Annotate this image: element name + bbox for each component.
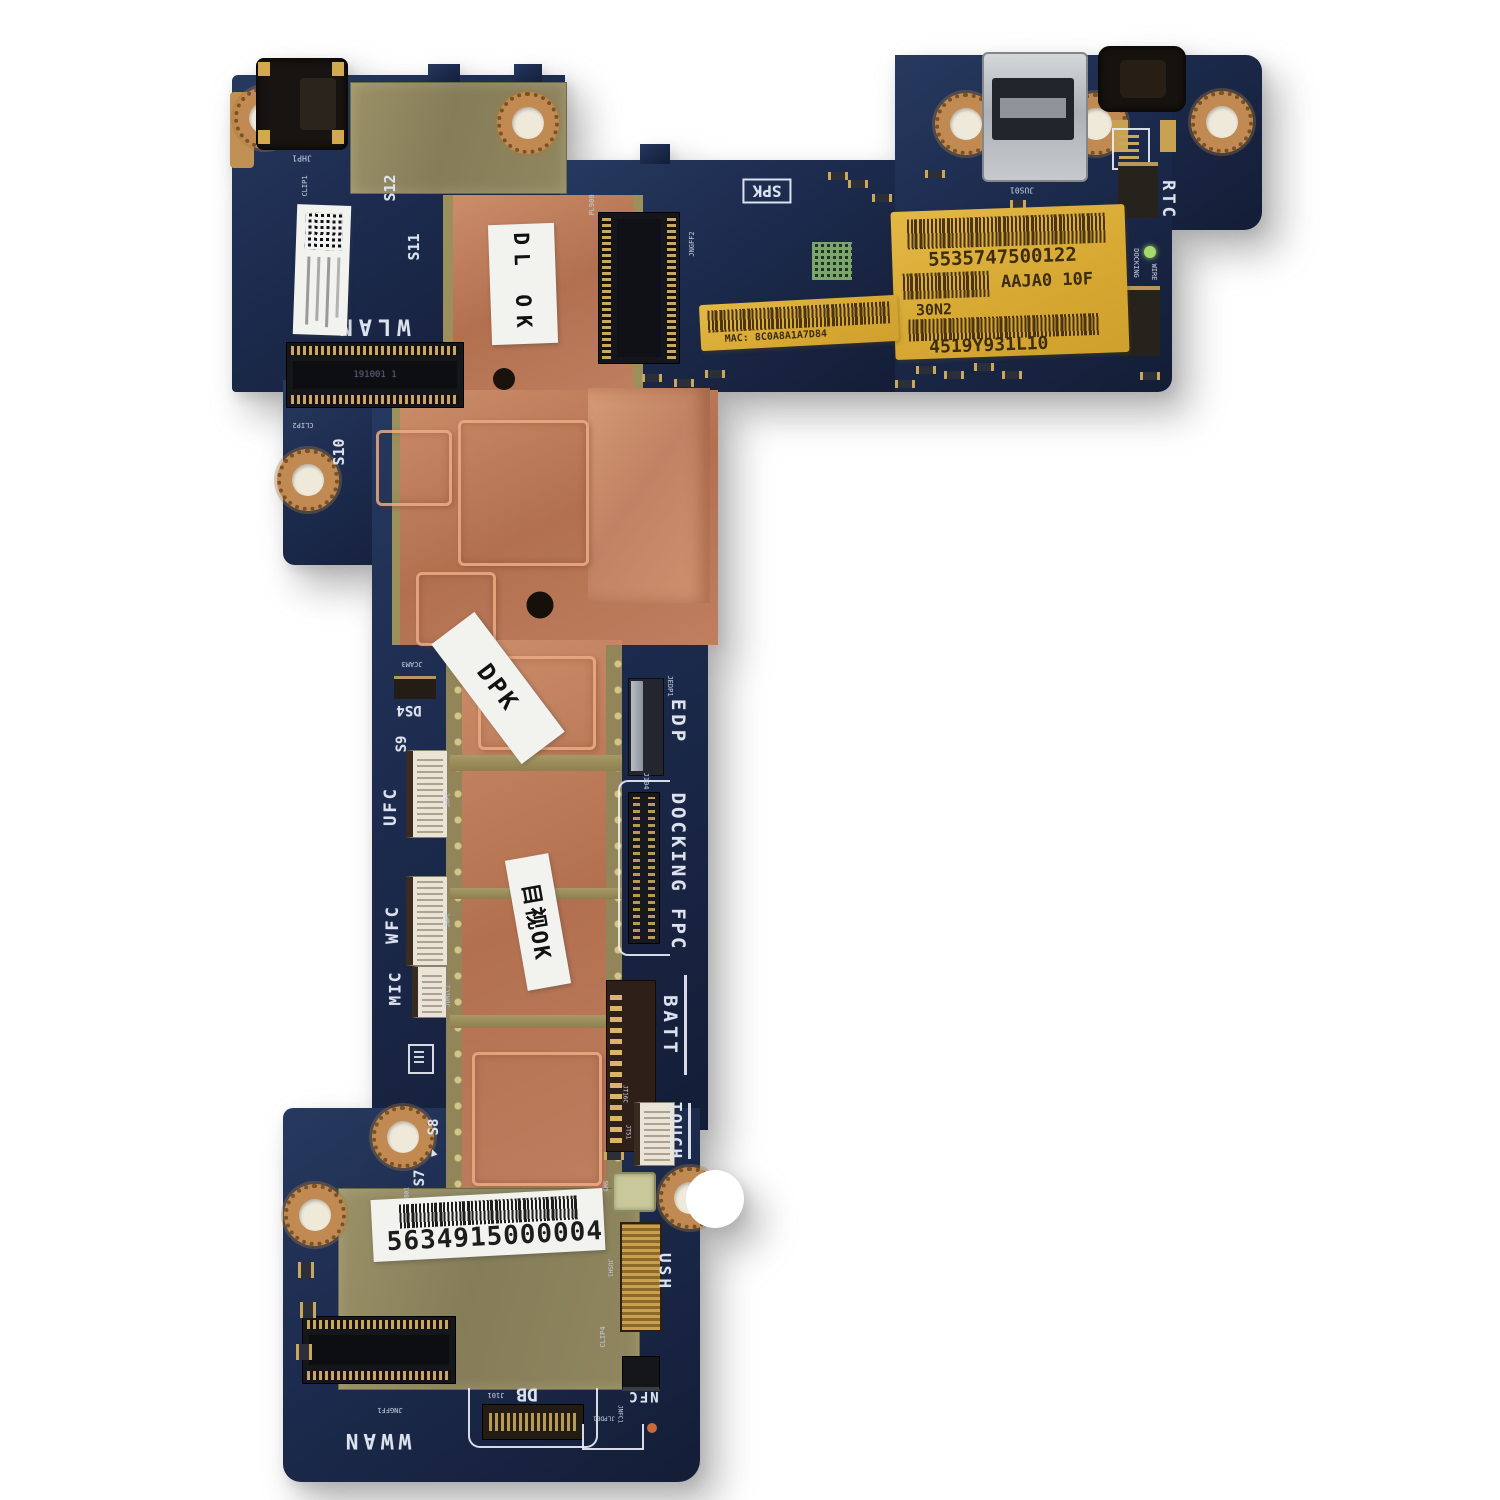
- smd-component: [974, 363, 994, 371]
- camera-connector: [394, 676, 436, 699]
- smd-component: [642, 374, 662, 382]
- gold-cross-rib-3: [450, 1015, 622, 1028]
- audio-jack-right: [1098, 46, 1186, 112]
- status-led: [1144, 246, 1156, 258]
- silkscreen-jngff2: JNGFF2: [688, 231, 696, 256]
- yellow-label-serial: 5535747500122: [928, 244, 1077, 271]
- silkscreen-edp: EDP: [667, 699, 689, 745]
- silkscreen-clip4: CLIP4: [599, 1326, 607, 1347]
- silkscreen-ufc: UFC: [381, 786, 401, 826]
- battery-connector-pins: [610, 989, 622, 1143]
- tactile-button: [612, 1172, 656, 1212]
- silkscreen-jus01: JUS01: [1010, 186, 1034, 195]
- smd-component: [298, 1262, 314, 1278]
- silkscreen-jt51: JT51: [625, 1125, 632, 1139]
- wwan-m2-pins-bottom: [307, 1371, 451, 1380]
- barcode: [707, 301, 890, 332]
- audio-jack-right-inner: [1120, 60, 1166, 98]
- wwan-m2-slot: [309, 1335, 449, 1365]
- smd-component: [895, 380, 915, 388]
- wlan-slot-print: 191001 1: [353, 370, 396, 380]
- gold-cross-rib-1: [450, 755, 622, 771]
- jack-gold-pad-b: [1160, 120, 1176, 152]
- sticker-text-line: [315, 257, 320, 321]
- copper-emboss-center: [458, 420, 589, 566]
- silkscreen-docking-fpc: DOCKING FPC: [667, 793, 689, 952]
- silkscreen-db: DB: [516, 1384, 538, 1405]
- smd-component: [1002, 371, 1022, 379]
- yellow-label-code2: 30N2: [916, 300, 953, 319]
- silkscreen-spk: SPK: [743, 179, 792, 204]
- screw-hole-s8: [372, 1106, 434, 1168]
- ngff2-m2-connector: [598, 212, 680, 364]
- silkscreen-jush1: JUSH1: [607, 1259, 614, 1277]
- silkscreen-jedp1: JEDP1: [666, 675, 674, 696]
- motherboard: 191001 1: [0, 0, 1500, 1500]
- smd-component: [604, 1152, 624, 1160]
- smd-component: [296, 1344, 312, 1360]
- wwan-m2-connector: [302, 1316, 456, 1384]
- smd-component: [944, 371, 964, 379]
- silkscreen-jdmic1: JDMIC1: [445, 985, 452, 1007]
- silkscreen-nfc: NFC: [627, 1388, 658, 1404]
- serial-barcode-sticker: 5634915000004: [371, 1188, 606, 1262]
- copper-emboss-left-plate: [376, 430, 452, 506]
- db-connector: [482, 1404, 584, 1440]
- nfc-chip: [622, 1356, 660, 1391]
- wfc-connector: [406, 876, 448, 966]
- silkscreen-s8: S8: [426, 1119, 442, 1136]
- silkscreen-s11: S11: [405, 233, 423, 260]
- sticker-text-line: [305, 256, 310, 324]
- dpk-text: DPK: [471, 659, 525, 718]
- silkscreen-jnfc1: JNFC1: [617, 1405, 624, 1423]
- wlan-m2-pins-top: [291, 346, 459, 355]
- silkscreen-ds4: DS4: [396, 702, 421, 718]
- edp-connector: [628, 678, 664, 776]
- fiducial-dot: [647, 1423, 657, 1433]
- silkscreen-jufc: JUFC: [445, 793, 452, 807]
- visual-ok-text: 目视OK: [515, 881, 560, 964]
- smd-component: [705, 370, 725, 378]
- edp-connector-metal: [631, 681, 643, 771]
- silkscreen-wire: WIRE: [1150, 264, 1158, 281]
- silkscreen-jlpde1: JLPDE1: [593, 1415, 615, 1422]
- yellow-label-part: 4519Y931L10: [929, 333, 1049, 358]
- silkscreen-jt16c: JT16C: [622, 1085, 629, 1103]
- screw-dot-lower: [527, 592, 554, 619]
- jack-pad-1: [258, 62, 270, 76]
- silkscreen-rtc: RTC: [1158, 180, 1178, 220]
- ufc-connector: [406, 750, 448, 838]
- wlan-m2-connector: 191001 1: [286, 342, 464, 408]
- datamatrix-code: [305, 212, 343, 250]
- copper-emboss-col-lower: [472, 1052, 602, 1186]
- docking-fpc-connector: [628, 792, 660, 944]
- silkscreen-jngff1: JNGFF1: [377, 1406, 402, 1414]
- jack-pad-3: [258, 130, 270, 144]
- smd-component: [925, 170, 945, 178]
- smd-component: [916, 366, 936, 374]
- silkscreen-wfc: WFC: [383, 904, 403, 944]
- mic-pins: [422, 971, 442, 1013]
- wfc-pins: [417, 881, 443, 961]
- sticker-text-line: [335, 258, 340, 318]
- smd-component: [300, 1302, 316, 1318]
- yellow-label-code: AAJA0 10F: [1001, 269, 1094, 292]
- label-outline-box: [408, 1044, 434, 1074]
- ufc-pins: [417, 755, 443, 833]
- screw-hole-shield: [497, 92, 559, 154]
- screw-hole-top-right-corner: [1191, 91, 1253, 153]
- service-qr-sticker: [293, 204, 352, 336]
- silkscreen-batt: BATT: [659, 995, 681, 1057]
- docking-fpc-pins-right: [648, 797, 655, 939]
- screw-hole-bottom-left: [284, 1184, 346, 1246]
- headphone-jack-left: [256, 58, 348, 150]
- jack-pad-2: [332, 62, 344, 76]
- wwan-m2-pins-top: [307, 1320, 451, 1329]
- docking-fpc-pins-left: [633, 797, 640, 939]
- silkscreen-wwan: WWAN: [341, 1429, 412, 1453]
- silkscreen-s9: S9: [394, 736, 410, 753]
- pcb-datamatrix-code: [812, 242, 852, 280]
- smd-component: [872, 194, 892, 202]
- pin-header-bars: [1119, 135, 1139, 159]
- jack-pad-4: [332, 130, 344, 144]
- dl-ok-sticker: DL OK: [488, 223, 558, 345]
- silkscreen-clip2: CLIP2: [292, 421, 313, 429]
- photo-canvas: 191001 1: [0, 0, 1500, 1500]
- silkscreen-j104: J104: [642, 773, 650, 790]
- silkscreen-pl900: PL900: [588, 194, 596, 215]
- ngff2-pins-left: [602, 217, 611, 359]
- silkscreen-jhp1: JHP1: [292, 154, 311, 163]
- usb-port: [982, 52, 1088, 182]
- pcb-tab-top-edge-3: [640, 144, 670, 164]
- silkscreen-touch: TOUCH: [667, 1102, 686, 1160]
- db-connector-pins: [489, 1413, 577, 1431]
- ngff2-slot: [617, 219, 661, 357]
- silkscreen-mic: MIC: [386, 971, 405, 1006]
- silkscreen-j101: J101: [488, 1391, 505, 1399]
- silkscreen-jwfc: JWFC: [445, 913, 452, 927]
- silkscreen-jcam3: JCAM3: [401, 660, 422, 668]
- lpde-bracket: [582, 1424, 644, 1450]
- silkscreen-s10: S10: [330, 438, 348, 465]
- silkscreen-s7: S7: [412, 1170, 428, 1187]
- yellow-barcode-label: 5535747500122 AAJA0 10F 30N2 4519Y931L10: [890, 204, 1129, 360]
- screw-dot-upper: [493, 368, 515, 390]
- silkscreen-s12: S12: [381, 174, 399, 201]
- usb-tongue: [1000, 98, 1066, 118]
- ngff2-pins-right: [667, 217, 676, 359]
- silkscreen-docking: DOCKING: [1132, 248, 1140, 278]
- edge-notch-cutout: [686, 1170, 744, 1228]
- silkscreen-sw3: SW3: [602, 1181, 609, 1192]
- touch-bracket-line: [688, 1103, 691, 1159]
- smd-component: [828, 172, 848, 180]
- wlan-m2-pins-bottom: [291, 395, 459, 404]
- barcode: [903, 271, 990, 300]
- label-box-bars: [414, 1051, 424, 1063]
- smd-component: [848, 180, 868, 188]
- copper-foil-right-slab: [588, 388, 710, 603]
- silkscreen-ush: USH: [656, 1253, 675, 1291]
- silkscreen-clip1: CLIP1: [301, 175, 309, 196]
- sticker-text-line: [325, 257, 330, 327]
- dl-ok-text: DL OK: [509, 232, 537, 336]
- smd-component: [1140, 372, 1160, 380]
- mic-connector: [412, 966, 447, 1018]
- jack-barrel: [300, 78, 336, 130]
- smd-component: [674, 379, 694, 387]
- batt-bracket-line: [684, 975, 687, 1075]
